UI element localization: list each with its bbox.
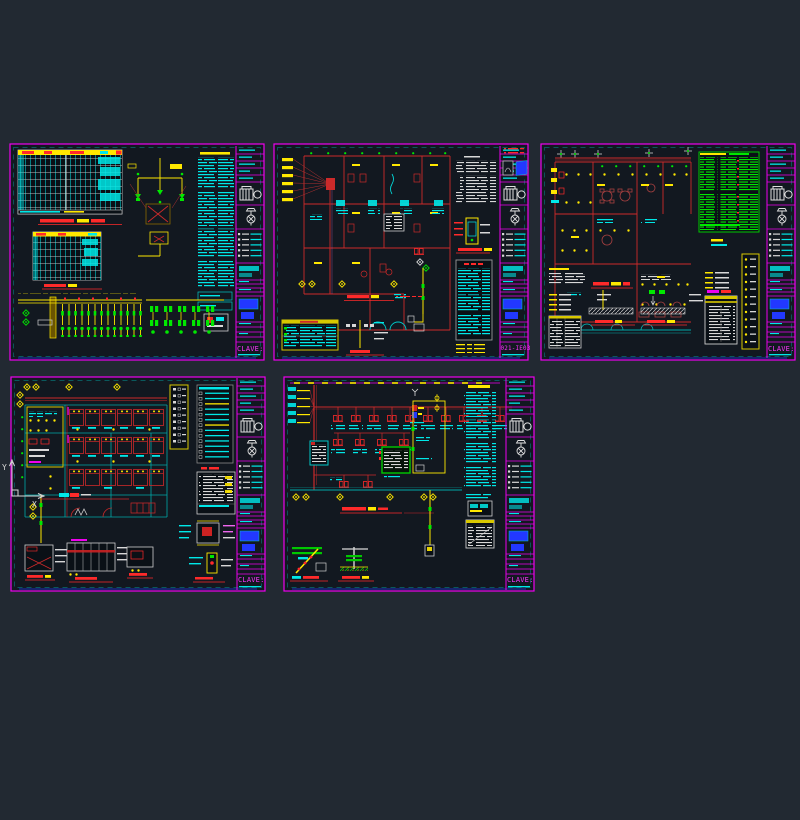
notes-text xyxy=(456,156,496,203)
detail-tables[interactable] xyxy=(466,493,494,548)
ucs-x-label: X xyxy=(32,500,37,509)
sheet-key: CLAVE: xyxy=(768,345,795,353)
notas-box xyxy=(456,260,492,340)
sheet-5[interactable]: CLAVE: xyxy=(284,377,534,591)
yellow-note xyxy=(456,344,486,353)
sheet-2[interactable]: 021-IE03 xyxy=(274,144,531,360)
cad-viewport[interactable]: CLAVE: xyxy=(0,0,800,820)
sheet-key: CLAVE: xyxy=(237,345,264,353)
sheet-1[interactable]: CLAVE: xyxy=(10,144,264,360)
sheet-key: CLAVE: xyxy=(507,576,534,584)
drawing-canvas: CLAVE: xyxy=(0,0,800,820)
circuit-schedule-table[interactable] xyxy=(699,152,759,232)
notes-column xyxy=(464,385,496,487)
sheet-key: CLAVE: xyxy=(238,576,265,584)
sheet-4[interactable]: CLAVE: xyxy=(11,377,265,591)
nota-table xyxy=(197,467,235,514)
cable-table[interactable] xyxy=(282,320,338,350)
sheet-3[interactable]: CLAVE: xyxy=(541,144,795,360)
ucs-y-label: Y xyxy=(2,463,7,472)
panel-table[interactable] xyxy=(705,290,737,344)
symbol-legend[interactable] xyxy=(197,385,233,463)
symbol-legend-strip[interactable] xyxy=(742,254,759,349)
table-caption xyxy=(711,239,723,242)
panel-box[interactable] xyxy=(310,441,328,465)
fixture-legend-strip[interactable] xyxy=(170,385,188,449)
sheet-key: 021-IE03 xyxy=(501,346,531,352)
panel-schedule-table[interactable] xyxy=(18,150,122,214)
